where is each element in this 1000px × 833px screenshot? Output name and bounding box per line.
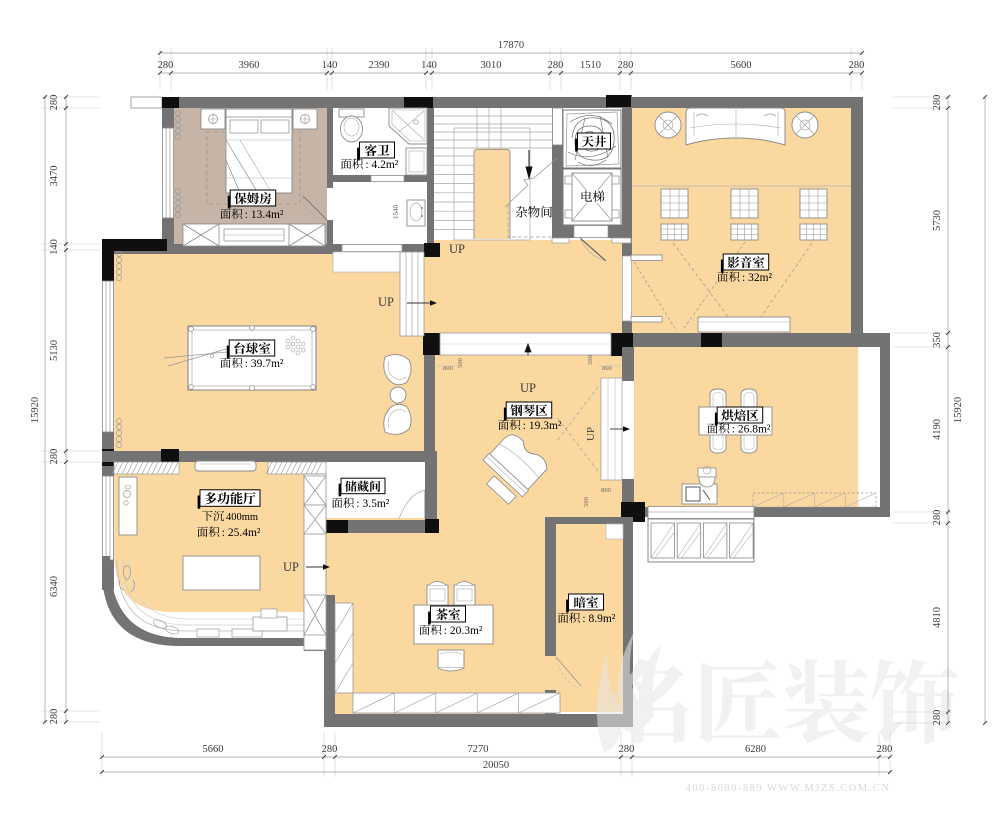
svg-text:140: 140 — [421, 60, 437, 71]
svg-text:400-8080-889 WWW.MJZS.COM.CN: 400-8080-889 WWW.MJZS.COM.CN — [686, 783, 891, 794]
svg-text:: 3.5m²: : 3.5m² — [356, 498, 389, 510]
svg-text:500: 500 — [583, 497, 590, 507]
svg-text:280: 280 — [932, 510, 943, 526]
svg-text:6340: 6340 — [49, 576, 60, 597]
svg-text:7270: 7270 — [468, 744, 489, 755]
svg-text:20050: 20050 — [483, 760, 509, 771]
svg-text:4810: 4810 — [932, 607, 943, 628]
svg-text:: 13.4m²: : 13.4m² — [245, 209, 284, 221]
svg-text:280: 280 — [49, 449, 60, 465]
svg-text:5660: 5660 — [203, 744, 224, 755]
svg-text:500: 500 — [587, 355, 594, 365]
svg-text:280: 280 — [932, 710, 943, 726]
svg-text:280: 280 — [618, 60, 634, 71]
svg-text:280: 280 — [49, 709, 60, 725]
svg-text:17870: 17870 — [498, 40, 524, 51]
svg-text:15920: 15920 — [953, 397, 964, 423]
svg-text:UP: UP — [283, 560, 299, 574]
svg-text:: 39.7m²: : 39.7m² — [245, 358, 284, 370]
svg-text:800: 800 — [601, 487, 611, 494]
svg-text:: 4.2m²: : 4.2m² — [365, 159, 398, 171]
svg-text:5600: 5600 — [731, 60, 752, 71]
svg-text:: 26.8m²: : 26.8m² — [732, 423, 771, 435]
svg-text:UP: UP — [378, 295, 394, 309]
svg-text:5130: 5130 — [49, 340, 60, 361]
svg-text:280: 280 — [158, 60, 174, 71]
svg-text:: 19.3m²: : 19.3m² — [523, 420, 562, 432]
svg-text:140: 140 — [49, 239, 60, 255]
svg-text:5730: 5730 — [932, 210, 943, 231]
svg-text:UP: UP — [520, 381, 536, 395]
svg-text:280: 280 — [619, 744, 635, 755]
svg-text:280: 280 — [877, 744, 893, 755]
svg-text:3960: 3960 — [239, 60, 260, 71]
svg-text:400mm: 400mm — [226, 512, 258, 523]
svg-text:: 25.4m²: : 25.4m² — [222, 527, 261, 539]
svg-text:280: 280 — [548, 60, 564, 71]
svg-text:3010: 3010 — [481, 60, 502, 71]
svg-text:500: 500 — [457, 358, 464, 368]
svg-text:280: 280 — [932, 95, 943, 111]
svg-text:: 20.3m²: : 20.3m² — [444, 625, 483, 637]
svg-text:1540: 1540 — [392, 205, 400, 220]
svg-text:: 32m²: : 32m² — [742, 272, 773, 284]
svg-text:UP: UP — [585, 427, 597, 441]
svg-text:280: 280 — [322, 744, 338, 755]
svg-text:: 8.9m²: : 8.9m² — [582, 613, 615, 625]
svg-text:280: 280 — [849, 60, 865, 71]
svg-text:3470: 3470 — [49, 166, 60, 187]
svg-text:140: 140 — [322, 60, 338, 71]
svg-text:15920: 15920 — [30, 397, 41, 423]
svg-text:1510: 1510 — [580, 60, 601, 71]
svg-text:280: 280 — [49, 95, 60, 111]
svg-text:6280: 6280 — [745, 744, 766, 755]
svg-text:350: 350 — [932, 332, 943, 348]
svg-text:4190: 4190 — [932, 419, 943, 440]
svg-text:UP: UP — [449, 242, 465, 256]
svg-text:2390: 2390 — [369, 60, 390, 71]
